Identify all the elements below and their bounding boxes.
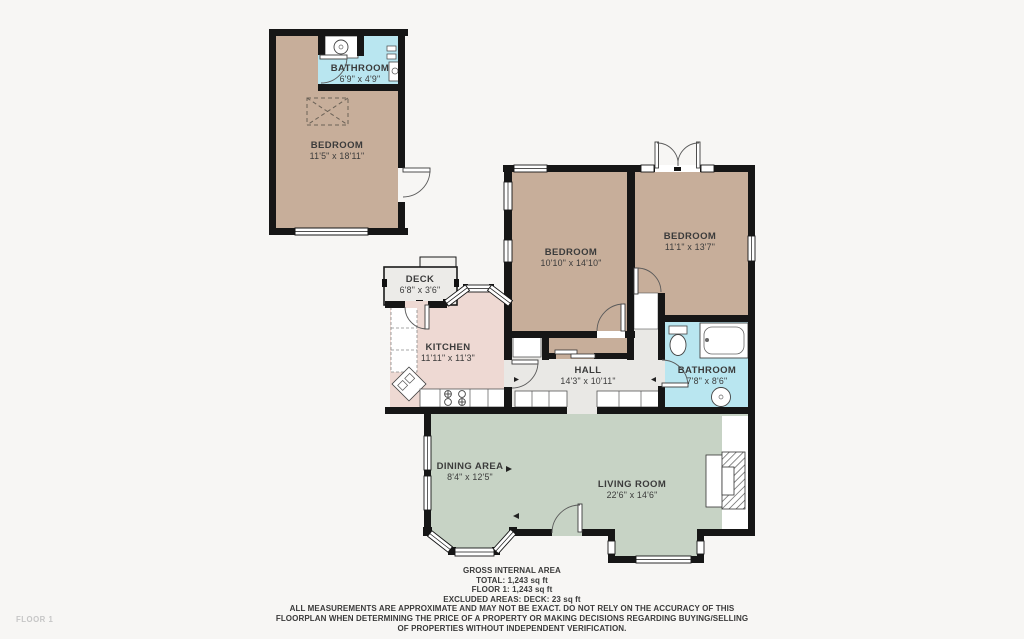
floor1-area: FLOOR 1: 1,243 sq ft [0,585,1024,595]
room-label-deck: DECK 6'8" x 3'6" [400,274,441,296]
floorplan-drawing [0,0,1024,639]
disclaimer-line1: ALL MEASUREMENTS ARE APPROXIMATE AND MAY… [0,604,1024,614]
disclaimer-line2: FLOORPLAN WHEN DETERMINING THE PRICE OF … [0,614,1024,624]
hall-closet [513,336,541,357]
kitchen-cabinets [391,306,417,372]
room-label-bathroom-main: BATHROOM 7'8" x 8'6" [678,365,736,387]
excluded-areas: EXCLUDED AREAS: DECK: 23 sq ft [0,595,1024,605]
room-label-bathroom-top: BATHROOM 6'9" x 4'9" [331,63,389,85]
footer-area-summary: GROSS INTERNAL AREA TOTAL: 1,243 sq ft F… [0,566,1024,633]
room-label-bedroom-right: BEDROOM 11'1" x 13'7" [664,231,716,253]
gross-internal-area-title: GROSS INTERNAL AREA [0,566,1024,576]
toilet-tank [669,326,687,334]
room-label-bedroom-left: BEDROOM 10'10" x 14'10" [540,247,601,269]
room-label-living: LIVING ROOM 22'6" x 14'6" [598,479,666,501]
corridor [634,293,658,329]
floor-label: FLOOR 1 [16,615,53,624]
hall-cabinets-left [515,391,567,407]
disclaimer-line3: OF PROPERTIES WITHOUT INDEPENDENT VERIFI… [0,624,1024,634]
floorplan-page: BATHROOM 6'9" x 4'9" BEDROOM 11'5" x 18'… [0,0,1024,639]
door-leaf [320,55,347,59]
hall-cabinets-right [597,391,662,407]
toilet-icon [670,335,686,356]
basin-icon [712,388,731,407]
sink-icon [334,40,348,54]
room-label-kitchen: KITCHEN 11'11" x 11'3" [421,342,475,364]
fireplace-icon [706,452,745,509]
room-label-bedroom-top: BEDROOM 11'5" x 18'11" [310,140,365,162]
door-leaf [403,168,430,172]
room-label-hall: HALL 14'3" x 10'11" [560,365,615,387]
total-area: TOTAL: 1,243 sq ft [0,576,1024,586]
room-label-dining: DINING AREA 8'4" x 12'5" [437,461,504,483]
